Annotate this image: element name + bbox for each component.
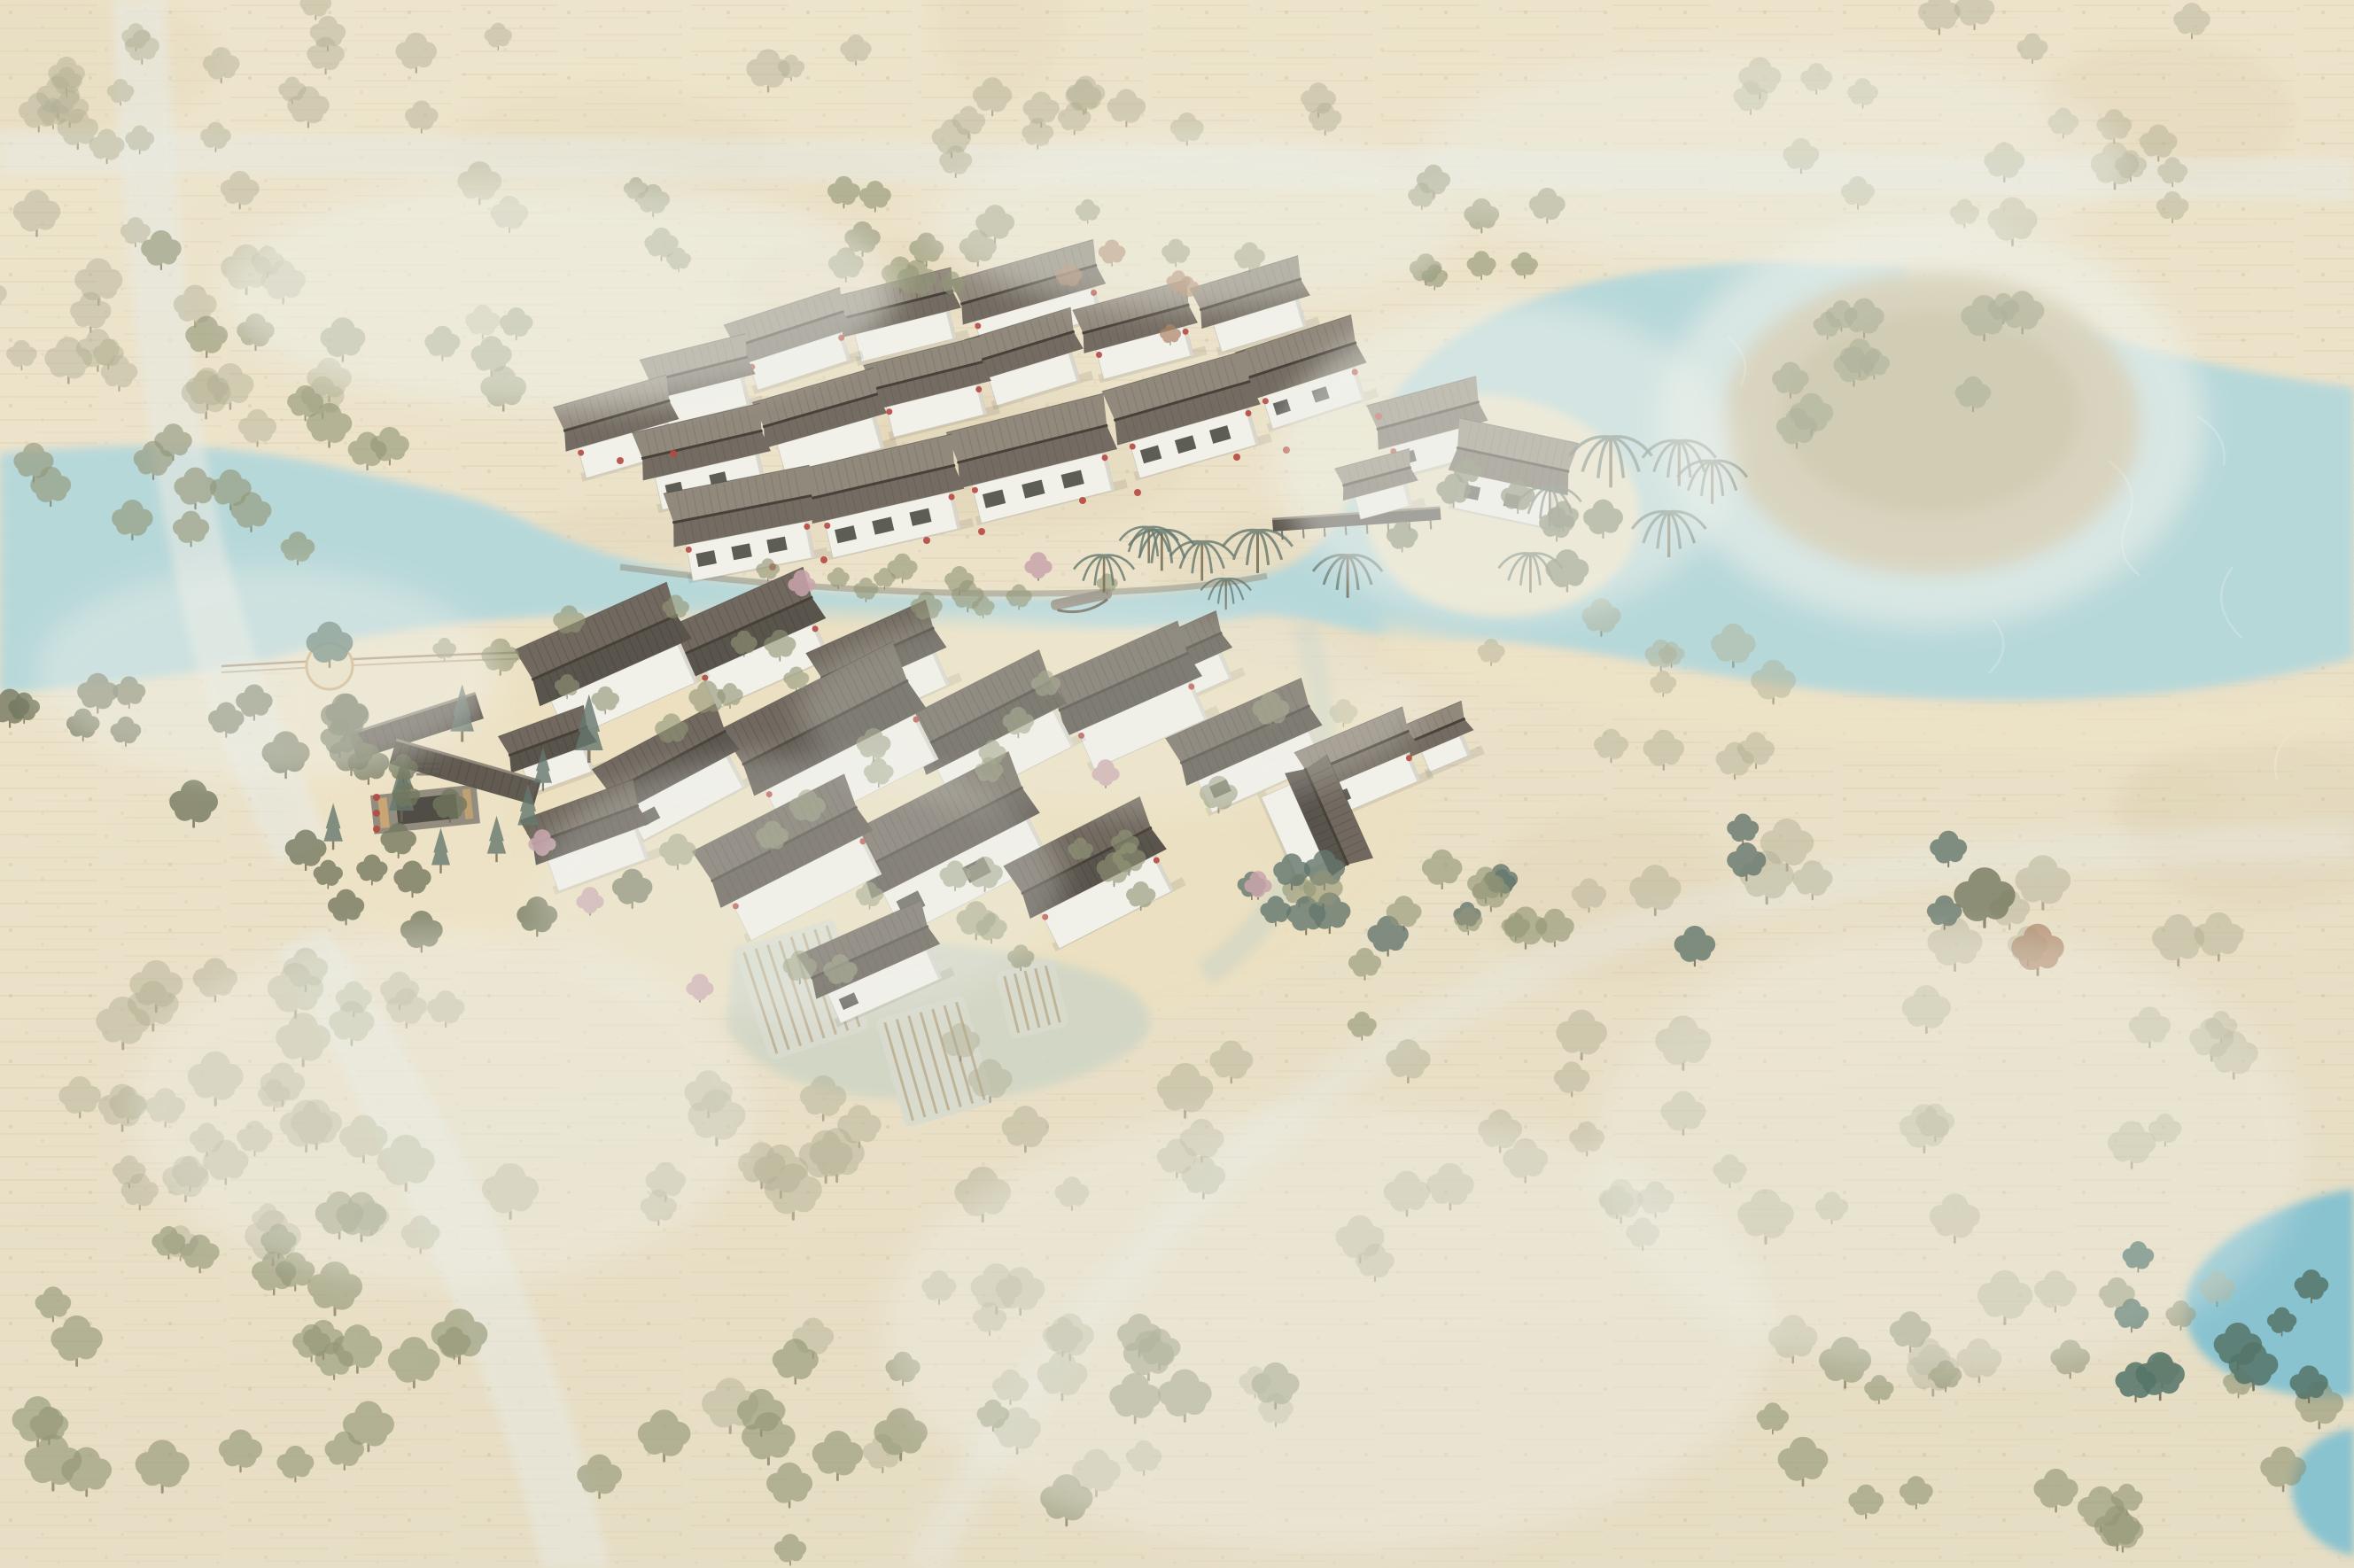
illustration-canvas	[0, 0, 2354, 1568]
masterplan-svg	[0, 0, 2354, 1568]
